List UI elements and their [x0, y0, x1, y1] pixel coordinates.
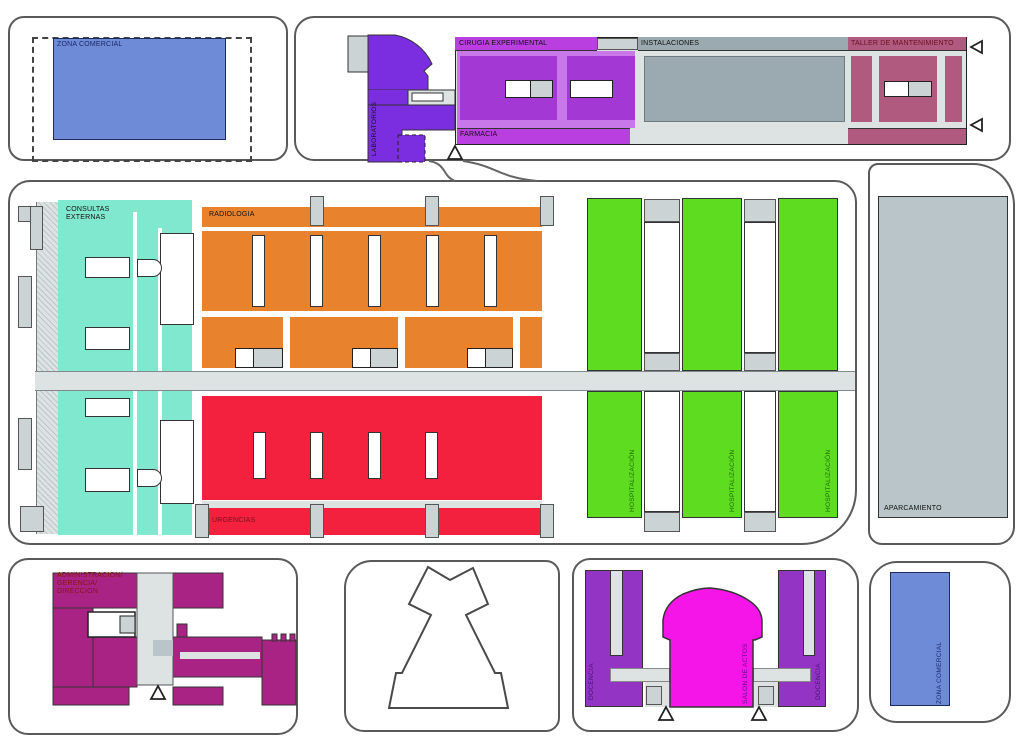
taller-strip [848, 128, 966, 144]
window-gray [253, 349, 282, 367]
administration-container [8, 558, 298, 735]
radiologia-lightwell [252, 235, 265, 307]
consultas-room [85, 398, 130, 417]
column-tab [540, 196, 554, 226]
administracion-label-line3: DIRECCION [57, 588, 123, 596]
cirugia-window-a [505, 80, 553, 98]
docencia-box-right [758, 686, 774, 705]
window-white [353, 349, 370, 367]
docencia-slot-right [803, 570, 815, 656]
window-gray [370, 349, 397, 367]
window-white [468, 349, 485, 367]
column-tab [18, 418, 32, 470]
commercial-zone-bottom-label: ZONA COMERCIAL [936, 628, 943, 704]
radiologia-lightwell [426, 235, 439, 307]
chapel-container [344, 560, 560, 732]
urgencias-lightwell [368, 432, 381, 479]
urgencias-corridor [202, 501, 542, 508]
taller-block-right [945, 56, 962, 122]
window-white [236, 349, 253, 367]
radiologia-label: RADIOLOGIA [209, 211, 255, 219]
radiologia-window [352, 348, 398, 368]
hospitalizacion-bar [587, 198, 642, 371]
band-gray-box [597, 38, 638, 50]
docencia-box-left [646, 686, 662, 705]
floor-plan: ZONA COMERCIAL CIRUGIA EXPERIMENTAL INST… [0, 0, 1024, 741]
hospitalizacion-label: HOSPITALIZACIÓN [825, 438, 832, 512]
salon-label: SALON DE ACTOS [742, 628, 749, 704]
consultas-label-line1: CONSULTAS [66, 206, 110, 214]
door-bay [137, 259, 162, 277]
taller-block-left [851, 56, 872, 122]
consultas-label: CONSULTAS EXTERNAS [66, 206, 110, 222]
radiologia-block-row2 [520, 317, 542, 368]
radiologia-lightwell [484, 235, 497, 307]
window-white [506, 81, 530, 97]
consultas-label-line2: EXTERNAS [66, 214, 110, 222]
ward-court [744, 391, 776, 512]
ward-link [744, 512, 776, 532]
radiologia-lightwell [368, 235, 381, 307]
window-gray [908, 82, 932, 96]
hospitalizacion-bar [682, 198, 742, 371]
docencia-label-left: DOCENCIA [588, 618, 595, 700]
ward-link [744, 199, 776, 222]
ward-link [644, 512, 680, 532]
docencia-slot-left [610, 570, 623, 656]
laboratorios-label: LABORATORIOS [371, 56, 378, 156]
column-tab [310, 504, 324, 538]
passage-connector [429, 161, 537, 181]
consultas-hall-upper [160, 233, 194, 325]
door-bay [137, 469, 162, 487]
taller-window [884, 81, 932, 97]
parking-label: APARCAMIENTO [884, 505, 942, 513]
column-tab [425, 196, 439, 226]
administracion-label: ADMINISTRACION/ GERENCIA/ DIRECCION [57, 572, 123, 596]
column-tab [540, 504, 554, 538]
column-tab [30, 206, 43, 250]
instalaciones-label: INSTALACIONES [641, 40, 699, 48]
docencia-corridor-left [610, 668, 670, 682]
ward-court [644, 222, 680, 353]
consultas-room [85, 327, 130, 350]
window-white [885, 82, 908, 96]
window-gray [485, 349, 512, 367]
commercial-zone-top-block [53, 38, 226, 140]
urgencias-lightwell [425, 432, 438, 479]
commercial-zone-top-label: ZONA COMERCIAL [57, 41, 122, 49]
column-tab [20, 506, 44, 532]
column-tab [195, 504, 209, 538]
consultas-room [85, 468, 130, 492]
ward-link [644, 353, 680, 371]
hospitalizacion-label: HOSPITALIZACIÓN [729, 438, 736, 512]
administracion-label-line1: ADMINISTRACION/ [57, 572, 123, 580]
farmacia-label: FARMACIA [460, 131, 497, 139]
column-tab [18, 276, 32, 328]
parking-block [878, 196, 1008, 518]
urgencias-lightwell [253, 432, 266, 479]
instalaciones-block [644, 56, 845, 122]
urgencias-label: URGENCIAS [212, 517, 255, 525]
hospitalizacion-label: HOSPITALIZACIÓN [629, 438, 636, 512]
radiologia-window [235, 348, 283, 368]
cirugia-label: CIRUGIA EXPERIMENTAL [459, 40, 547, 48]
radiologia-lightwell [310, 235, 323, 307]
administracion-label-line2: GERENCIA/ [57, 580, 123, 588]
ward-court [644, 391, 680, 512]
ward-link [744, 353, 776, 371]
ward-link [644, 199, 680, 222]
ward-court [744, 222, 776, 353]
docencia-label-right: DOCENCIA [815, 618, 822, 700]
cirugia-window-b [570, 80, 613, 98]
urgencias-lightwell [310, 432, 323, 479]
hospitalizacion-bar [778, 198, 838, 371]
column-tab [310, 196, 324, 226]
consultas-room [85, 257, 130, 278]
radiologia-window [467, 348, 513, 368]
taller-label: TALLER DE MANTENIMIENTO [851, 40, 954, 48]
west-corridor-hatched [36, 202, 58, 534]
window-gray [530, 81, 552, 97]
docencia-corridor-right [753, 668, 811, 682]
central-corridor [35, 371, 855, 391]
column-tab [425, 504, 439, 538]
consultas-hall-lower [160, 420, 194, 504]
